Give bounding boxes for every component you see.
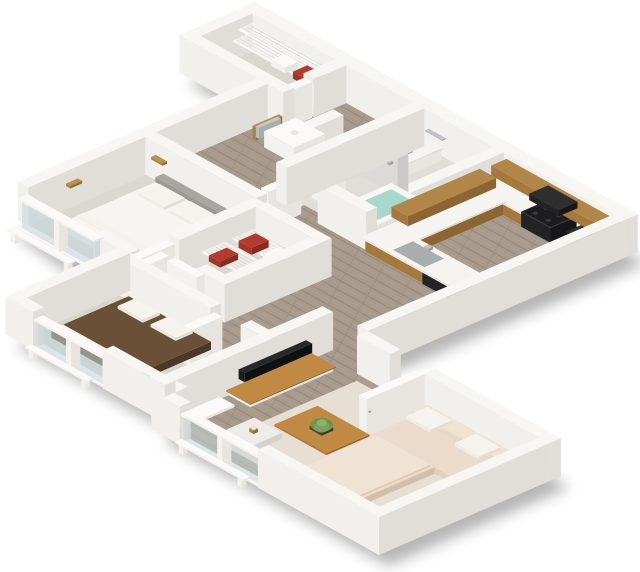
scene-root xyxy=(6,2,640,566)
stove-burner-4 xyxy=(545,219,551,222)
floor-plan-render xyxy=(0,0,640,572)
entry-door-knob xyxy=(369,411,372,413)
side-table-lamp-shade xyxy=(251,427,255,430)
plant-foliage-top xyxy=(317,419,327,426)
water-heater-lid xyxy=(291,130,299,135)
floor-plan-image xyxy=(0,0,640,572)
stove-burner-3 xyxy=(532,212,538,215)
